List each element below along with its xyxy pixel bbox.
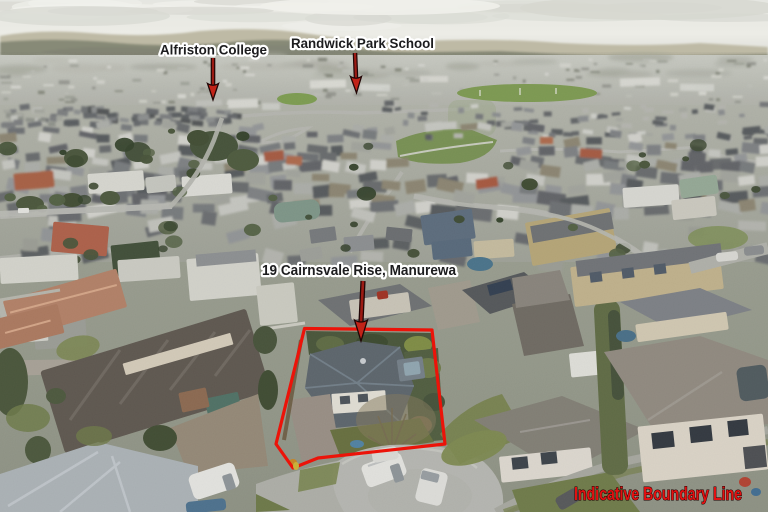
svg-text:19 Cairnsvale Rise, Manurewa: 19 Cairnsvale Rise, Manurewa: [262, 263, 457, 279]
svg-text:Indicative Boundary Line: Indicative Boundary Line: [574, 483, 742, 504]
svg-text:Alfriston College: Alfriston College: [160, 42, 267, 58]
svg-text:Randwick Park School: Randwick Park School: [291, 35, 434, 51]
